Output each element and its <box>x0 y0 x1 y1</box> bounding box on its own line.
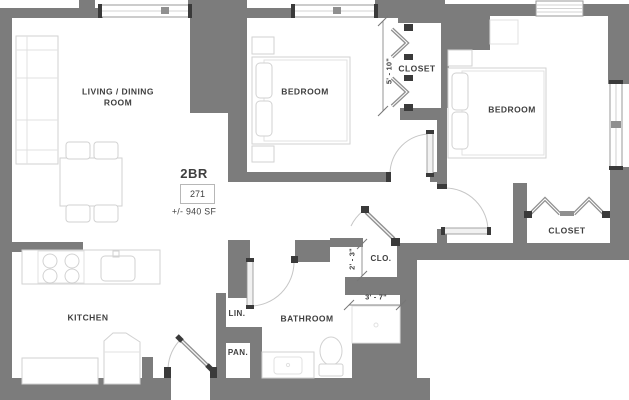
dimension-label-closet-small: 2' - 3" <box>347 248 356 270</box>
dining-table <box>60 142 122 222</box>
room-label-bathroom: BATHROOM <box>280 314 333 325</box>
door-bedroom-2 <box>437 184 491 235</box>
room-label-linen: LIN. <box>229 309 246 319</box>
shower <box>352 306 400 343</box>
window-living-room <box>98 4 192 18</box>
room-label-closet-small: CLO. <box>371 254 392 264</box>
room-label-closet-right: CLOSET <box>548 226 585 237</box>
unit-type: 2BR <box>180 166 208 182</box>
bifold-doors-closet-right <box>524 199 610 218</box>
dimension-label-closet-top: 5' - 10" <box>384 58 393 84</box>
toilet <box>319 337 343 376</box>
window-bedroom-1 <box>291 4 378 18</box>
door-bedroom-1 <box>386 130 434 182</box>
dimension-label-shower: 3' - 7" <box>365 292 387 301</box>
room-label-living-dining: LIVING / DINING ROOM <box>70 86 166 107</box>
unit-area: +/- 940 SF <box>172 207 216 218</box>
room-label-pantry: PAN. <box>228 348 248 358</box>
door-entry <box>164 336 217 378</box>
room-label-bedroom-1: BEDROOM <box>281 87 329 98</box>
floorplan-drawing <box>0 0 629 400</box>
unit-number-box: 271 <box>180 184 215 204</box>
window-bedroom-2-right <box>609 80 623 170</box>
sofa <box>16 36 58 164</box>
unit-number: 271 <box>190 189 205 199</box>
room-label-kitchen: KITCHEN <box>68 313 109 324</box>
room-label-bedroom-2: BEDROOM <box>488 105 536 116</box>
window-bedroom-2-top <box>536 1 583 16</box>
floorplan: LIVING / DINING ROOM BEDROOM BEDROOM CLO… <box>0 0 629 400</box>
door-bathroom <box>246 256 298 309</box>
bed-bedroom-1 <box>252 37 350 162</box>
room-label-closet-top: CLOSET <box>398 64 435 75</box>
bathroom-vanity <box>262 352 314 378</box>
